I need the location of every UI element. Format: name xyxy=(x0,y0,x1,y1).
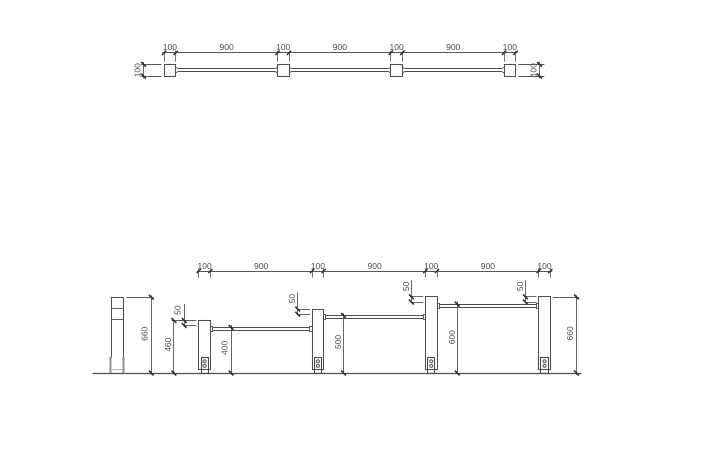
svg-text:900: 900 xyxy=(481,261,495,271)
svg-text:50: 50 xyxy=(515,281,525,291)
svg-text:100: 100 xyxy=(276,42,290,52)
svg-text:50: 50 xyxy=(172,305,182,315)
svg-text:900: 900 xyxy=(446,42,460,52)
svg-text:50: 50 xyxy=(401,281,411,291)
svg-text:600: 600 xyxy=(447,330,457,344)
svg-text:100: 100 xyxy=(163,42,177,52)
svg-text:100: 100 xyxy=(424,261,438,271)
svg-text:100: 100 xyxy=(198,261,212,271)
svg-text:100: 100 xyxy=(390,42,404,52)
svg-text:500: 500 xyxy=(333,335,343,349)
svg-text:660: 660 xyxy=(140,326,150,340)
svg-text:100: 100 xyxy=(537,261,551,271)
svg-text:100: 100 xyxy=(503,42,517,52)
svg-text:100: 100 xyxy=(529,63,539,77)
svg-text:660: 660 xyxy=(565,326,575,340)
svg-text:400: 400 xyxy=(220,341,230,355)
svg-text:100: 100 xyxy=(311,261,325,271)
svg-text:900: 900 xyxy=(333,42,347,52)
svg-text:100: 100 xyxy=(133,63,143,77)
svg-text:50: 50 xyxy=(287,294,297,304)
svg-text:460: 460 xyxy=(163,337,173,351)
svg-text:900: 900 xyxy=(368,261,382,271)
svg-text:900: 900 xyxy=(220,42,234,52)
svg-text:900: 900 xyxy=(254,261,268,271)
